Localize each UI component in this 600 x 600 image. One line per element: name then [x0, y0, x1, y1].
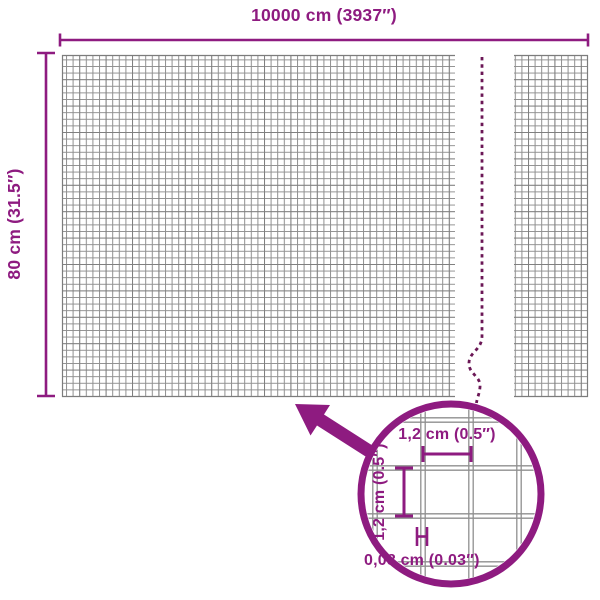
cell-height-label: 1,2 cm (0.5″): [371, 443, 388, 540]
wire-thickness-label: 0,08 cm (0.03″): [364, 552, 480, 569]
width-dimension: [60, 34, 588, 47]
break-dashed-line: [469, 57, 482, 403]
mesh-panel-right: [514, 55, 588, 397]
cell-width-label: 1,2 cm (0.5″): [398, 426, 495, 443]
mesh-fence-diagram: 10000 cm (3937″) 80 cm (31.5″) 1,2 cm (0…: [0, 0, 600, 600]
height-label: 80 cm (31.5″): [4, 168, 24, 279]
height-dimension: [37, 53, 55, 396]
mesh-panel-left: [62, 55, 455, 397]
diagram-canvas: 10000 cm (3937″) 80 cm (31.5″) 1,2 cm (0…: [0, 0, 600, 600]
width-label: 10000 cm (3937″): [251, 5, 397, 25]
